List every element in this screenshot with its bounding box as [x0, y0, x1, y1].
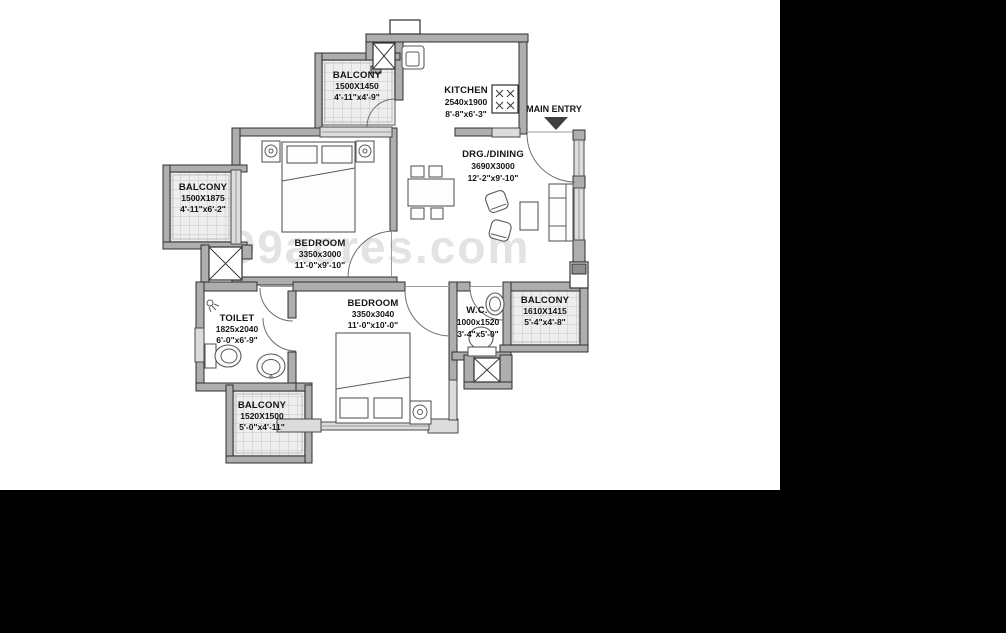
- main-entry-label: MAIN ENTRY: [526, 104, 582, 114]
- coffee-table-icon: [520, 202, 538, 230]
- roof-ledge-box: [390, 20, 420, 34]
- sofa-icon: [549, 184, 573, 241]
- entry-arrow-icon: [544, 117, 568, 130]
- svg-text:W.C.: W.C.: [466, 305, 487, 316]
- balcony-left-label: BALCONY 1500X1875 4'-11"x6'-2": [179, 182, 228, 214]
- washbasin-icon: [486, 293, 504, 315]
- svg-text:4'-11"x6'-2": 4'-11"x6'-2": [180, 204, 226, 214]
- svg-text:BEDROOM: BEDROOM: [294, 238, 345, 249]
- svg-text:1500X1875: 1500X1875: [181, 193, 225, 203]
- svg-text:BALCONY: BALCONY: [521, 295, 570, 306]
- svg-text:3350x3040: 3350x3040: [352, 309, 395, 319]
- svg-text:2540x1900: 2540x1900: [445, 97, 488, 107]
- svg-text:3350x3000: 3350x3000: [299, 249, 342, 259]
- svg-text:DRG./DINING: DRG./DINING: [462, 149, 524, 160]
- svg-text:BALCONY: BALCONY: [333, 70, 382, 81]
- svg-text:BALCONY: BALCONY: [179, 182, 228, 193]
- svg-text:KITCHEN: KITCHEN: [444, 85, 488, 96]
- svg-text:3'-4"x5'-0": 3'-4"x5'-0": [457, 329, 498, 339]
- toilet-label: TOILET 1825x2040 6'-0"x6'-9": [216, 313, 259, 345]
- svg-text:1520X1500: 1520X1500: [240, 411, 284, 421]
- bed-icon: [262, 141, 374, 232]
- svg-text:1825x2040: 1825x2040: [216, 324, 259, 334]
- shower-icon: [207, 300, 213, 306]
- svg-text:5'-4"x4'-8": 5'-4"x4'-8": [524, 317, 565, 327]
- balcony-top-label: BALCONY 1500X1450 4'-11"x4'-9": [333, 70, 382, 102]
- svg-text:3690X3000: 3690X3000: [471, 161, 515, 171]
- wc-pot-icon: [205, 344, 216, 368]
- svg-text:TOILET: TOILET: [220, 313, 255, 324]
- svg-text:5'-0"x4'-11": 5'-0"x4'-11": [239, 422, 285, 432]
- dining-set-icon: [408, 166, 454, 219]
- balcony-right-label: BALCONY 1610X1415 5'-4"x4'-8": [521, 295, 570, 327]
- armchair-icon: [484, 189, 509, 214]
- svg-text:1610X1415: 1610X1415: [523, 306, 567, 316]
- main-entry-marker: MAIN ENTRY: [526, 104, 582, 130]
- svg-text:BALCONY: BALCONY: [238, 400, 287, 411]
- bedroom1-label: BEDROOM 3350x3000 11'-0"x9'-10": [294, 238, 345, 270]
- bedroom2-label: BEDROOM 3350x3040 11'-0"x10'-0": [347, 298, 398, 330]
- balcony-bottom-label: BALCONY 1520X1500 5'-0"x4'-11": [238, 400, 287, 432]
- drg-dining-label: DRG./DINING 3690X3000 12'-2"x9'-10": [462, 149, 524, 183]
- svg-text:6'-0"x6'-9": 6'-0"x6'-9": [216, 335, 257, 345]
- svg-text:1500X1450: 1500X1450: [335, 81, 379, 91]
- svg-text:12'-2"x9'-10": 12'-2"x9'-10": [468, 173, 519, 183]
- watermark-text: 99acres.com: [230, 221, 531, 273]
- svg-text:11'-0"x9'-10": 11'-0"x9'-10": [295, 260, 345, 270]
- bed-icon: [336, 333, 431, 424]
- svg-text:4'-11"x4'-9": 4'-11"x4'-9": [334, 92, 380, 102]
- kitchen-label: KITCHEN 2540x1900 8'-8"x6'-3": [444, 85, 488, 119]
- floor-plan: 99acres.com: [0, 0, 780, 490]
- floor-plan-paper: 99acres.com: [0, 0, 780, 490]
- svg-text:1000x1520: 1000x1520: [457, 317, 500, 327]
- page-background: 99acres.com: [0, 0, 1006, 633]
- svg-text:11'-0"x10'-0": 11'-0"x10'-0": [348, 320, 398, 330]
- svg-text:BEDROOM: BEDROOM: [347, 298, 398, 309]
- svg-text:8'-8"x6'-3": 8'-8"x6'-3": [445, 109, 486, 119]
